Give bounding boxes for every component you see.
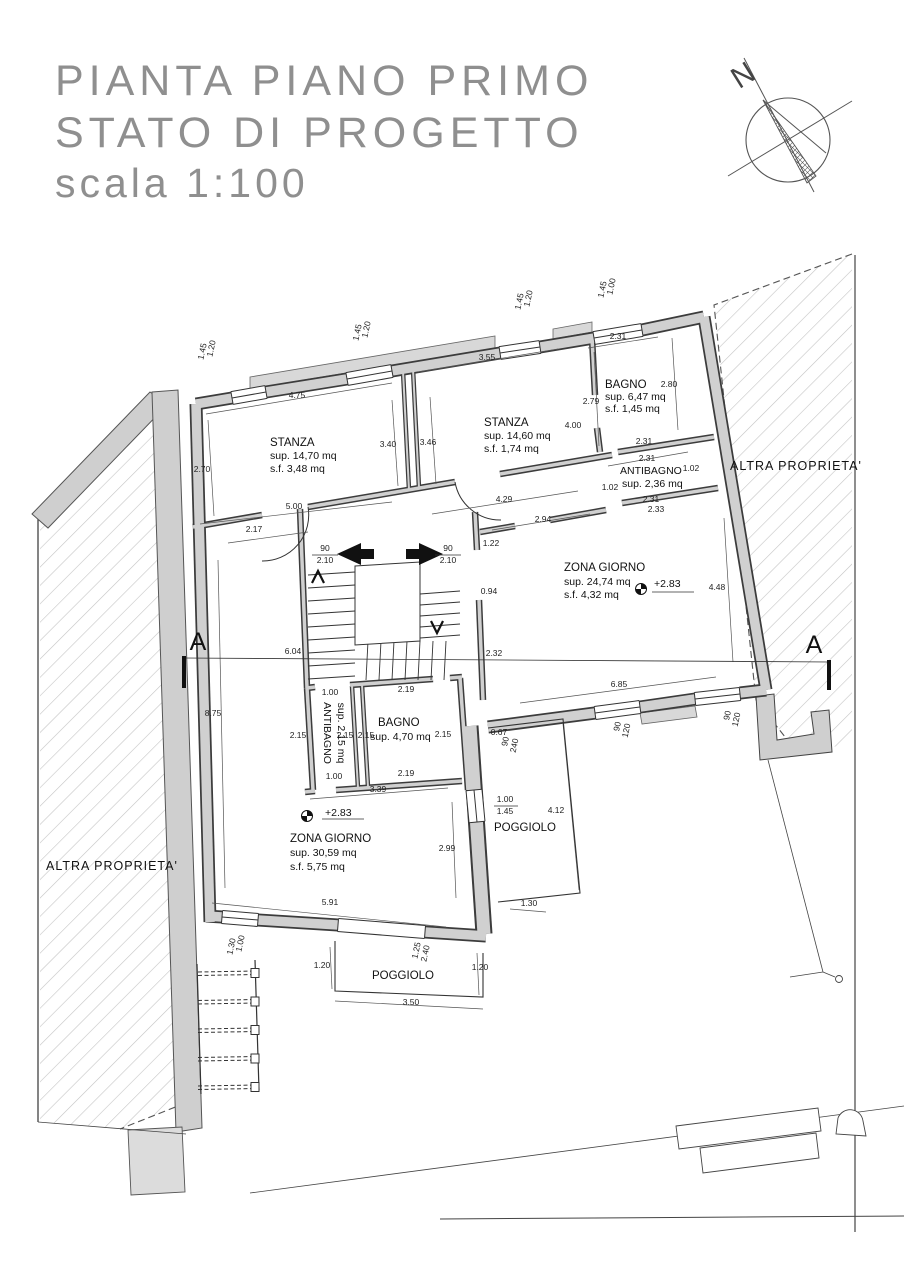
room-bagno2-sup: sup. 4,70 mq — [370, 731, 431, 743]
dim-s1-below: 2.17 — [246, 524, 263, 534]
dim-pr-win-bot: 1.45 — [497, 806, 514, 816]
external-stair — [197, 960, 259, 1094]
dim-s2-right-low: 4.00 — [565, 420, 582, 430]
dim-ab2-bottom: 1.00 — [326, 771, 343, 781]
dim-b1-bottom: 2.31 — [636, 436, 653, 446]
room-stanza2-sf: s.f. 1,74 mq — [484, 443, 539, 455]
section-label-left: A — [190, 628, 207, 656]
dim-blw-bot: 1.30 — [224, 937, 237, 956]
dim-ab1-top: 2.31 — [639, 453, 656, 463]
room-stanza1-name: STANZA — [270, 437, 315, 449]
dim-pb-left: 1.20 — [314, 960, 331, 970]
poggiolo-bottom-outline — [335, 941, 483, 997]
room-zona2-sf: s.f. 5,75 mq — [290, 861, 345, 873]
room-bagno1-sup: sup. 6,47 mq — [605, 391, 666, 403]
dim-window4-h: 1.45 — [595, 280, 608, 299]
dim-door-right-w: 90 — [443, 543, 453, 553]
terrain-line-5 — [790, 972, 823, 977]
dim-b2-side-l: 2.15 — [358, 730, 375, 740]
room-stanza2-name: STANZA — [484, 417, 529, 429]
dim-zgw2-h: 120 — [730, 711, 743, 727]
staircase — [308, 562, 460, 680]
dim-window1-h: 1.45 — [195, 342, 208, 361]
dim-zg1-right: 4.48 — [709, 582, 726, 592]
dim-pb-bottom: 3.50 — [403, 997, 420, 1007]
section-tick-right — [827, 660, 831, 690]
dim-window2-h: 1.45 — [350, 323, 363, 342]
site-point-icon — [836, 976, 843, 983]
room-antibagno1-sup: sup. 2,36 mq — [622, 478, 683, 490]
dim-section-len: 6.04 — [285, 646, 302, 656]
dim-s2-top: 3.55 — [479, 352, 496, 362]
dim-zg1-side2: 0.94 — [481, 586, 498, 596]
north-needle-icon — [763, 100, 816, 183]
lower-roof-shape-3 — [836, 1110, 866, 1136]
dim-b1-right: 2.80 — [661, 379, 678, 389]
title-line-3: scala 1:100 — [55, 160, 309, 206]
dim-zg1-top: 2.94 — [535, 514, 552, 524]
dim-b2-bottom: 2.19 — [398, 768, 415, 778]
dim-s2-left: 3.46 — [420, 437, 437, 447]
dim-pr-door-h: 240 — [508, 737, 521, 753]
dim-s1-left: 2.70 — [194, 464, 211, 474]
dim-pb-right: 1.20 — [472, 962, 489, 972]
room-poggiolo-right-name: POGGIOLO — [494, 822, 556, 834]
label-altra-proprieta-left: ALTRA PROPRIETA' — [46, 859, 178, 873]
door-arrow-left-icon — [337, 543, 374, 565]
room-bagno2-name: BAGNO — [378, 717, 420, 729]
label-altra-proprieta-right: ALTRA PROPRIETA' — [730, 459, 862, 473]
room-zona2-sup: sup. 30,59 mq — [290, 847, 357, 859]
dim-zg1-bottom: 6.85 — [611, 679, 628, 689]
terrain-line-3 — [440, 1216, 904, 1219]
dim-left-wall: 8.75 — [205, 708, 222, 718]
title-block: PIANTA PIANO PRIMO STATO DI PROGETTO sca… — [55, 57, 593, 206]
room-zona1-level: +2.83 — [654, 578, 681, 590]
dim-pr-win-top: 1.00 — [497, 794, 514, 804]
neighbour-structure-bottom — [128, 1127, 185, 1195]
north-label: N — [725, 56, 761, 95]
room-zona2-level: +2.83 — [325, 807, 352, 819]
dim-hall-d1: 1.00 — [322, 687, 339, 697]
dim-s1-right: 3.40 — [380, 439, 397, 449]
dim-zg2-wall: 2.99 — [439, 843, 456, 853]
room-stanza2-sup: sup. 14,60 mq — [484, 430, 551, 442]
site-areas — [32, 254, 855, 1232]
dim-door-left-w: 90 — [320, 543, 330, 553]
room-antibagno2-name: ANTIBAGNO — [321, 702, 333, 764]
dim-ab1-below: 2.33 — [648, 504, 665, 514]
door-arrow-right-icon — [406, 543, 443, 565]
room-zona2-name: ZONA GIORNO — [290, 833, 371, 845]
section-label-right: A — [806, 631, 823, 659]
title-line-2: STATO DI PROGETTO — [55, 109, 584, 157]
balconies — [335, 719, 580, 997]
dim-ab1-right: 1.02 — [683, 463, 700, 473]
dim-b1-top: 2.31 — [610, 331, 627, 341]
section-line: A A — [182, 628, 831, 690]
stair-up-arrow-icon — [312, 571, 324, 583]
terrain-line-6 — [823, 972, 835, 977]
dim-b2-side-r: 2.15 — [435, 729, 452, 739]
dim-window3-h: 1.45 — [512, 292, 525, 311]
dim-s2-bottom: 4.29 — [496, 494, 513, 504]
stair-down-arrow-icon — [431, 621, 443, 633]
dim-row3-total: 3.39 — [370, 784, 387, 794]
room-bagno1-sf: s.f. 1,45 mq — [605, 403, 660, 415]
dim-s1-top: 4.75 — [289, 390, 306, 400]
dim-zg2-bottom: 5.91 — [322, 897, 339, 907]
dim-door-left-h: 2.10 — [317, 555, 334, 565]
north-compass: N — [725, 56, 852, 192]
dim-pr-len: 4.12 — [548, 805, 565, 815]
dim-pr-gap: 0.67 — [491, 727, 508, 737]
dim-ab2-side-l: 2.15 — [290, 730, 307, 740]
dim-hall-d2: 2.19 — [398, 684, 415, 694]
dim-s2-right-up: 2.79 — [583, 396, 600, 406]
dim-zg1-side1: 1.22 — [483, 538, 500, 548]
walls-fill — [193, 317, 766, 936]
dim-ab2-side-r: 2.15 — [337, 730, 354, 740]
room-bagno1-name: BAGNO — [605, 379, 647, 391]
dim-pb-door-bot: 2.40 — [418, 944, 431, 963]
dim-ab1-bottom: 2.31 — [643, 494, 660, 504]
terrain-line-4 — [768, 760, 823, 972]
dim-door-right-h: 2.10 — [440, 555, 457, 565]
room-zona1-sf: s.f. 4,32 mq — [564, 589, 619, 601]
room-zona1-name: ZONA GIORNO — [564, 562, 645, 574]
dim-s1-bottom: 5.00 — [286, 501, 303, 511]
room-antibagno1-name: ANTIBAGNO — [620, 465, 682, 477]
room-poggiolo-bottom-name: POGGIOLO — [372, 970, 434, 982]
section-tick-left — [182, 656, 186, 688]
floor-plan-page: PIANTA PIANO PRIMO STATO DI PROGETTO sca… — [0, 0, 904, 1280]
dim-zgw1-h: 120 — [620, 722, 633, 738]
floor-plan-drawing: PIANTA PIANO PRIMO STATO DI PROGETTO sca… — [0, 0, 904, 1280]
title-line-1: PIANTA PIANO PRIMO — [55, 57, 593, 105]
room-stanza1-sf: s.f. 3,48 mq — [270, 463, 325, 475]
room-zona1-sup: sup. 24,74 mq — [564, 576, 631, 588]
room-stanza1-sup: sup. 14,70 mq — [270, 450, 337, 462]
dim-pr-edge: 1.30 — [521, 898, 538, 908]
dim-ab1-left: 1.02 — [602, 482, 619, 492]
dim-zg1-side3: 2.32 — [486, 648, 503, 658]
